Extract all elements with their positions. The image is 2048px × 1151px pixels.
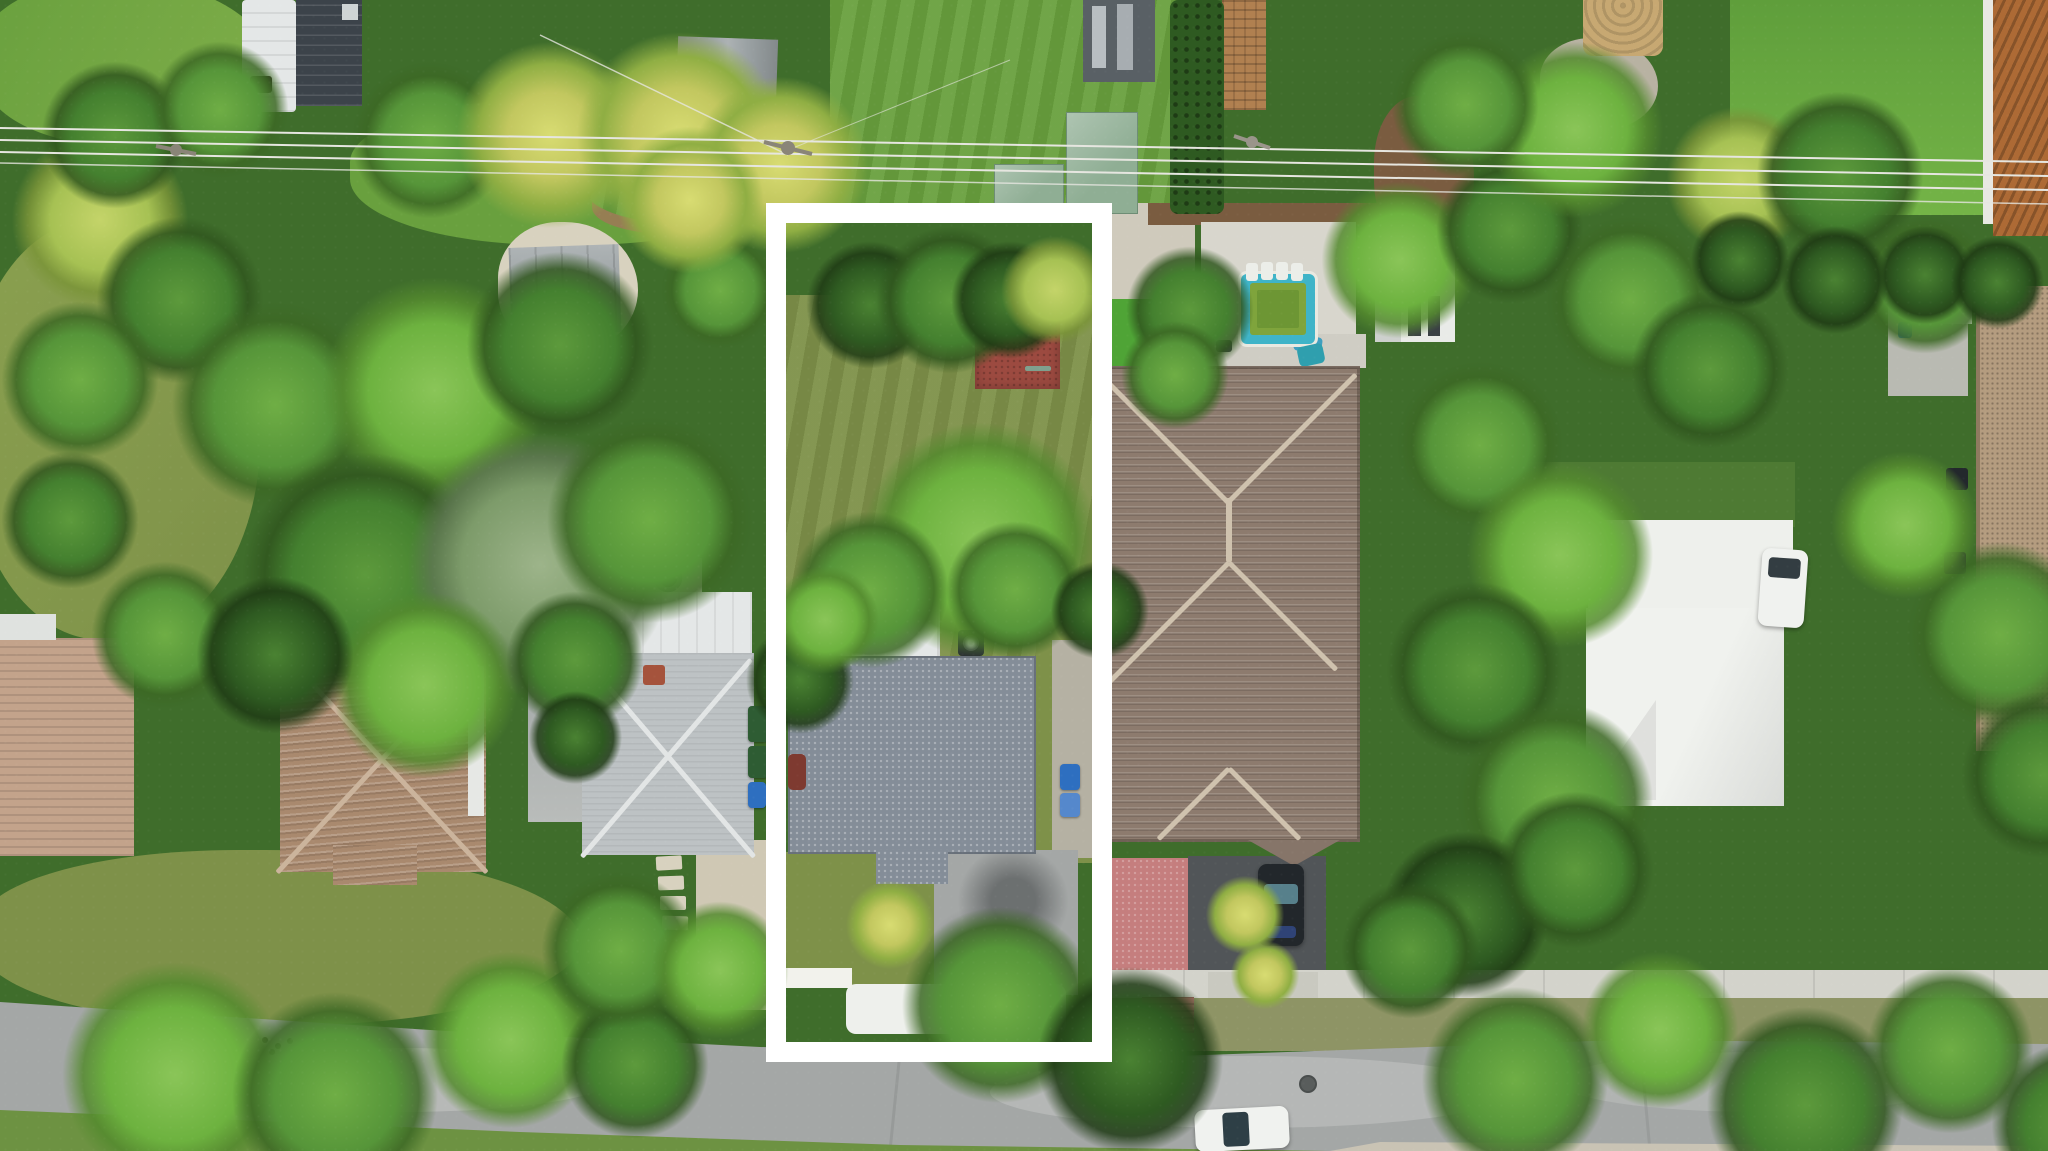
dark-metal-roof-building bbox=[296, 0, 362, 106]
property-boundary-outline bbox=[766, 203, 1112, 1062]
paver-patio-top bbox=[1222, 0, 1266, 110]
big-house-front-gable bbox=[1248, 840, 1340, 866]
stepping-stone bbox=[656, 855, 683, 870]
tree bbox=[0, 300, 160, 460]
windshield bbox=[1768, 557, 1801, 579]
skylight bbox=[1117, 4, 1133, 70]
lounge-chair bbox=[1246, 263, 1258, 281]
salmon-house-white-eave bbox=[0, 614, 56, 640]
manhole-cover bbox=[1300, 1076, 1316, 1092]
rooftop-ac-unit bbox=[342, 4, 358, 20]
banana-row bbox=[1690, 210, 1790, 310]
brown-house-front-gable bbox=[333, 845, 417, 885]
tree bbox=[528, 690, 623, 785]
banana-row bbox=[1950, 235, 2045, 330]
tree bbox=[1340, 880, 1480, 1020]
palm-tree bbox=[615, 125, 765, 275]
lounge-chair bbox=[1276, 262, 1288, 280]
tree bbox=[150, 40, 290, 180]
hedge-row bbox=[1170, 0, 1224, 214]
lounge-chair bbox=[1291, 263, 1303, 281]
tree bbox=[330, 590, 520, 780]
tree bbox=[0, 450, 140, 590]
white-car-right-driveway bbox=[1757, 547, 1808, 628]
windshield bbox=[1222, 1112, 1250, 1147]
aerial-photo bbox=[0, 0, 2048, 1151]
green-trash-bin bbox=[748, 746, 768, 778]
palm-by-driveway bbox=[1230, 940, 1300, 1010]
tree bbox=[1390, 30, 1540, 180]
pool-cover bbox=[1250, 283, 1306, 335]
green-tarp-frame bbox=[1066, 112, 1138, 214]
metal-shed-skylights bbox=[1083, 0, 1155, 82]
rust-structure bbox=[1993, 0, 2048, 236]
lounge-chair bbox=[1261, 262, 1273, 280]
tree bbox=[195, 575, 355, 735]
tree bbox=[1495, 790, 1655, 950]
skylight bbox=[1092, 6, 1106, 68]
tree bbox=[1630, 290, 1790, 450]
pool-cover-center bbox=[1257, 290, 1299, 328]
blue-recycle-bin bbox=[748, 782, 766, 808]
chimney-patch bbox=[643, 665, 665, 685]
tree bbox=[465, 250, 655, 440]
banana-row bbox=[1780, 225, 1890, 335]
tree bbox=[1120, 320, 1230, 430]
tree bbox=[1830, 450, 1980, 600]
